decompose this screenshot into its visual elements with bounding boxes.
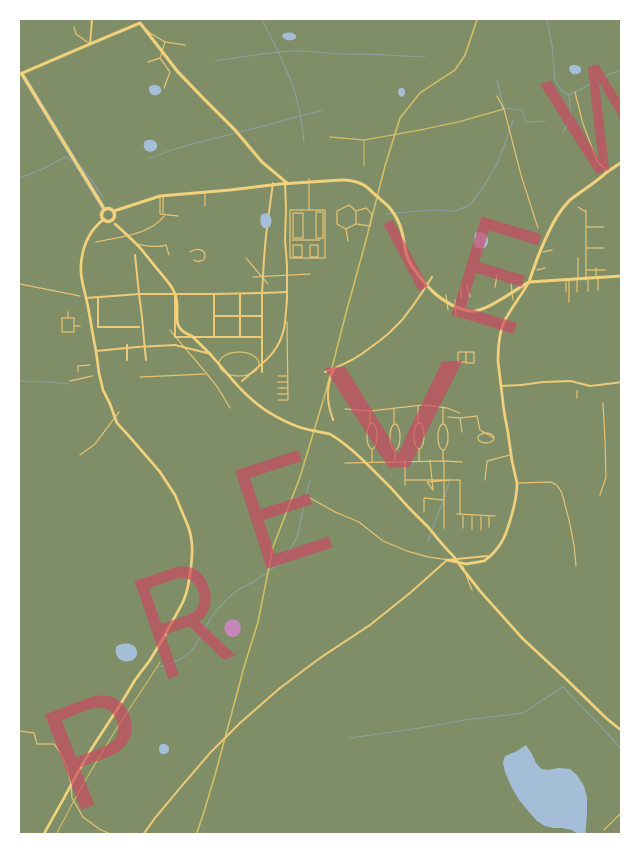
svg-text:V: V [322,328,471,503]
